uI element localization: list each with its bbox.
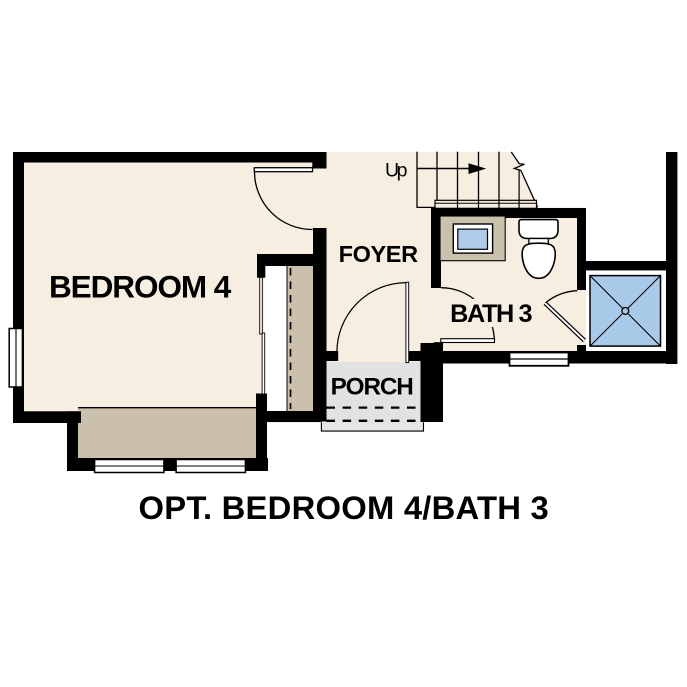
svg-text:OPT. BEDROOM 4/BATH 3: OPT. BEDROOM 4/BATH 3 [139,489,549,526]
svg-text:BEDROOM 4: BEDROOM 4 [49,268,232,304]
svg-text:Up: Up [385,160,408,182]
svg-text:BATH 3: BATH 3 [450,300,532,328]
svg-text:PORCH: PORCH [331,373,414,400]
svg-text:FOYER: FOYER [339,241,419,267]
